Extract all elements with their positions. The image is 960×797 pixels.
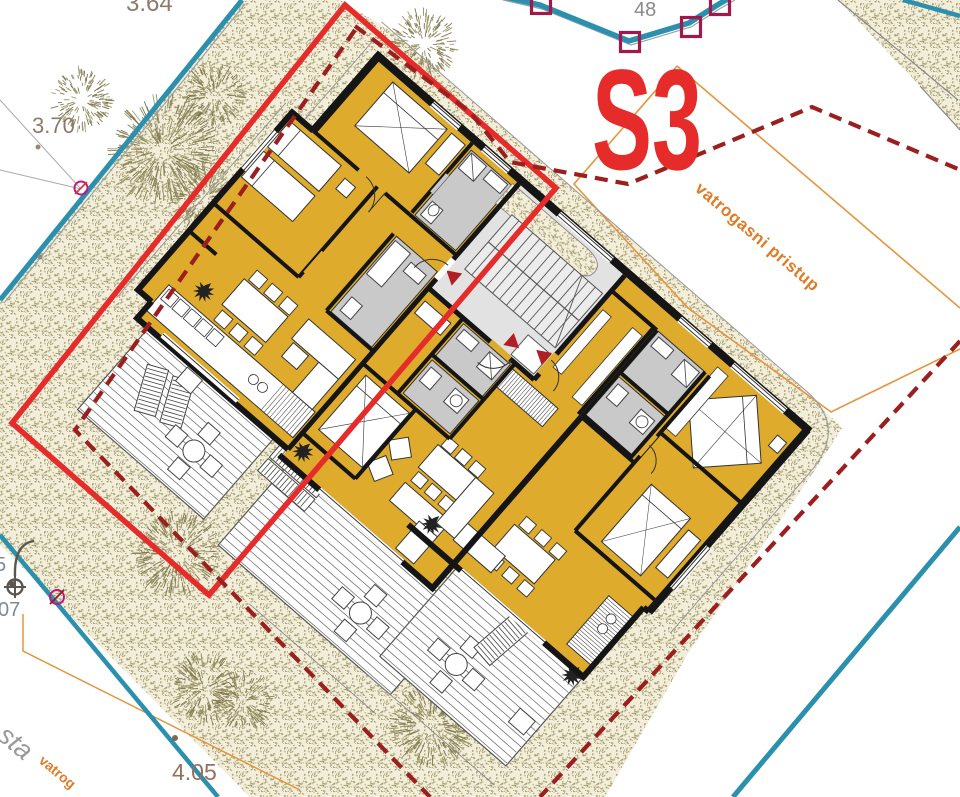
svg-text:S3: S3	[592, 41, 702, 200]
svg-text:5: 5	[0, 554, 6, 576]
svg-text:48: 48	[634, 0, 656, 21]
svg-text:3.64: 3.64	[126, 0, 173, 17]
svg-text:07: 07	[0, 599, 20, 621]
svg-text:4.05: 4.05	[172, 759, 217, 785]
svg-text:3.70: 3.70	[32, 113, 75, 138]
